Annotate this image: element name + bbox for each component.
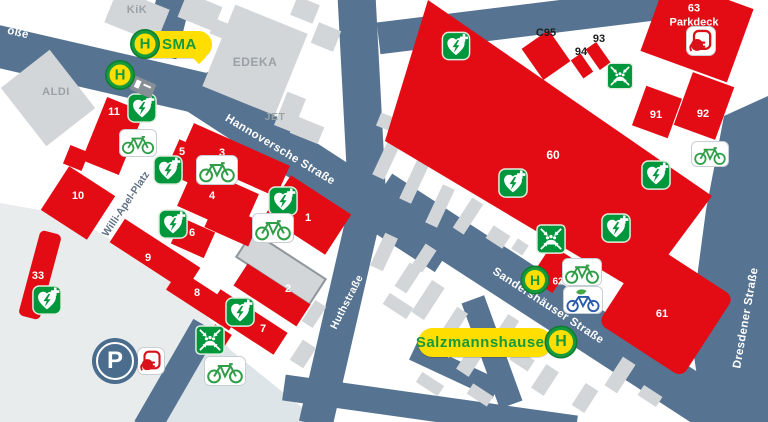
house: [383, 293, 414, 319]
building-label-94: 94: [575, 46, 587, 58]
assembly-point-icon: [195, 325, 225, 355]
house: [531, 364, 559, 396]
ev-charging-icon: [137, 347, 165, 375]
store-label-aldi: ALDI: [42, 86, 70, 98]
ev-charging-icon: [686, 26, 716, 56]
bus-stop-icon: H: [107, 62, 134, 89]
ticket-machine-slot: [143, 84, 151, 89]
house: [572, 383, 599, 413]
bike-sharing-icon: [563, 286, 603, 314]
assembly-point-icon: [607, 63, 634, 90]
defibrillator-icon: [32, 285, 62, 315]
bike-parking-icon: [691, 141, 729, 167]
building-label-c95: C95: [536, 27, 556, 39]
building-label-33: 33: [32, 270, 44, 282]
building-label-4: 4: [209, 190, 215, 202]
bus-stop-letter: H: [530, 272, 540, 288]
bus-stop-salzmannshausen-label: Salzmannshausen: [416, 334, 554, 351]
house: [411, 280, 444, 320]
defibrillator-icon: [225, 297, 255, 327]
bus-stop-salzmannshausen: Salzmannshausen: [418, 328, 552, 357]
defibrillator-icon: [153, 155, 183, 185]
site-map: Hannoversche Straße Sandershäuser Straße…: [0, 0, 768, 422]
building-label-63-number: 63: [670, 2, 719, 16]
building-label-1: 1: [305, 212, 311, 224]
building-label-93: 93: [593, 33, 605, 45]
bus-stop-sma-label: SMA: [162, 36, 197, 53]
defibrillator-icon: [641, 160, 671, 190]
parking-icon-letter: P: [107, 349, 123, 373]
parking-icon: P: [92, 338, 138, 384]
bus-stop-letter: H: [115, 67, 126, 84]
building-label-2: 2: [285, 283, 291, 295]
assembly-point-icon: [536, 224, 566, 254]
defibrillator-icon: [442, 32, 471, 61]
bus-stop-icon: H: [522, 267, 548, 293]
bike-parking-icon: [252, 213, 294, 243]
building-label-10: 10: [72, 190, 84, 202]
bus-stop-letter: H: [555, 333, 567, 351]
building-label-9: 9: [145, 252, 151, 264]
gray-building: [290, 0, 320, 24]
store-label-kik: KiK: [127, 4, 147, 16]
building-label-11: 11: [108, 106, 120, 118]
defibrillator-icon: [498, 168, 528, 198]
ticket-machine-screen: [134, 79, 142, 88]
building-label-92: 92: [697, 108, 709, 120]
store-label-jet: JET: [265, 111, 286, 123]
bike-parking-icon: [196, 155, 238, 185]
bike-parking-icon: [204, 356, 246, 386]
building-label-7: 7: [260, 323, 266, 335]
defibrillator-icon: [601, 213, 631, 243]
gray-building: [311, 22, 341, 51]
building-label-91: 91: [650, 109, 662, 121]
defibrillator-icon: [268, 186, 298, 216]
building-label-61: 61: [656, 308, 668, 320]
parking-icon-ring: P: [96, 342, 134, 380]
bus-stop-icon: H: [132, 31, 159, 58]
house: [416, 372, 444, 396]
bus-stop-icon: H: [546, 327, 576, 357]
bus-stop-letter: H: [140, 36, 151, 53]
defibrillator-icon: [158, 209, 188, 239]
store-label-edeka: EDEKA: [233, 55, 278, 69]
defibrillator-icon: [127, 93, 157, 123]
building-label-60: 60: [546, 148, 559, 162]
building-label-8: 8: [194, 287, 200, 299]
building-label-6: 6: [189, 227, 195, 239]
bike-parking-icon: [562, 258, 602, 286]
bike-parking-icon: [119, 129, 157, 157]
